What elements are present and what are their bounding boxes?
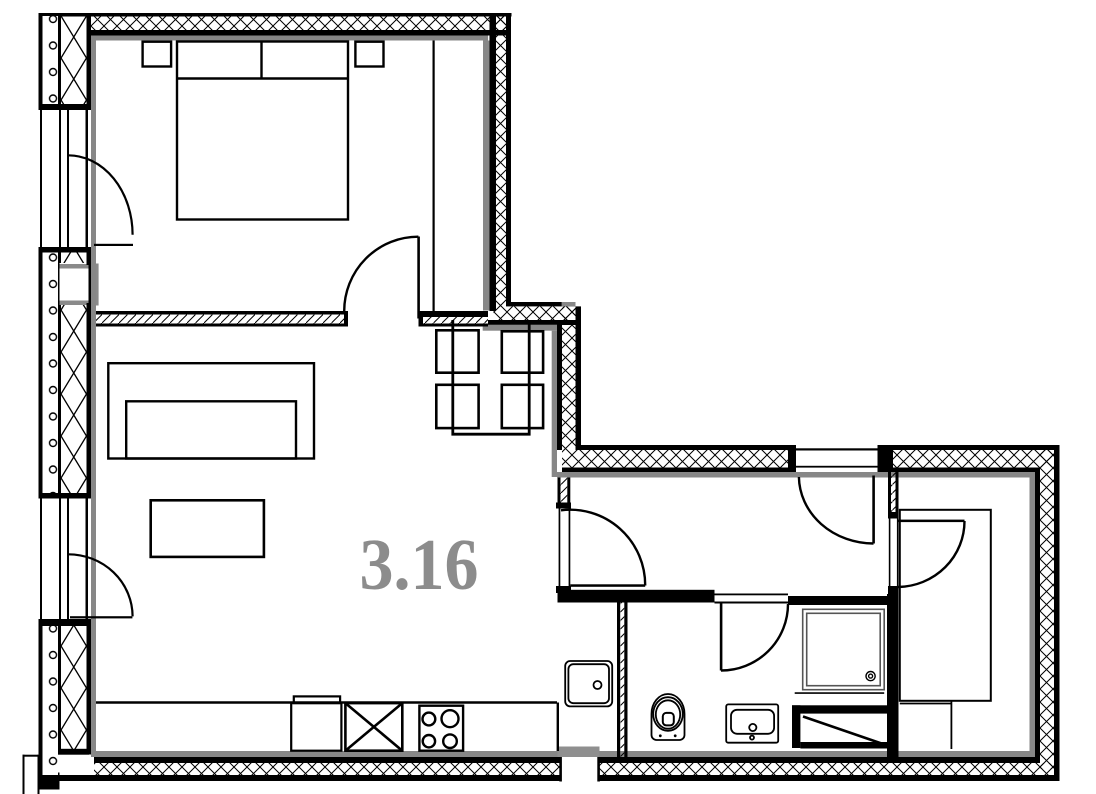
svg-text:3.16: 3.16 bbox=[360, 524, 479, 605]
